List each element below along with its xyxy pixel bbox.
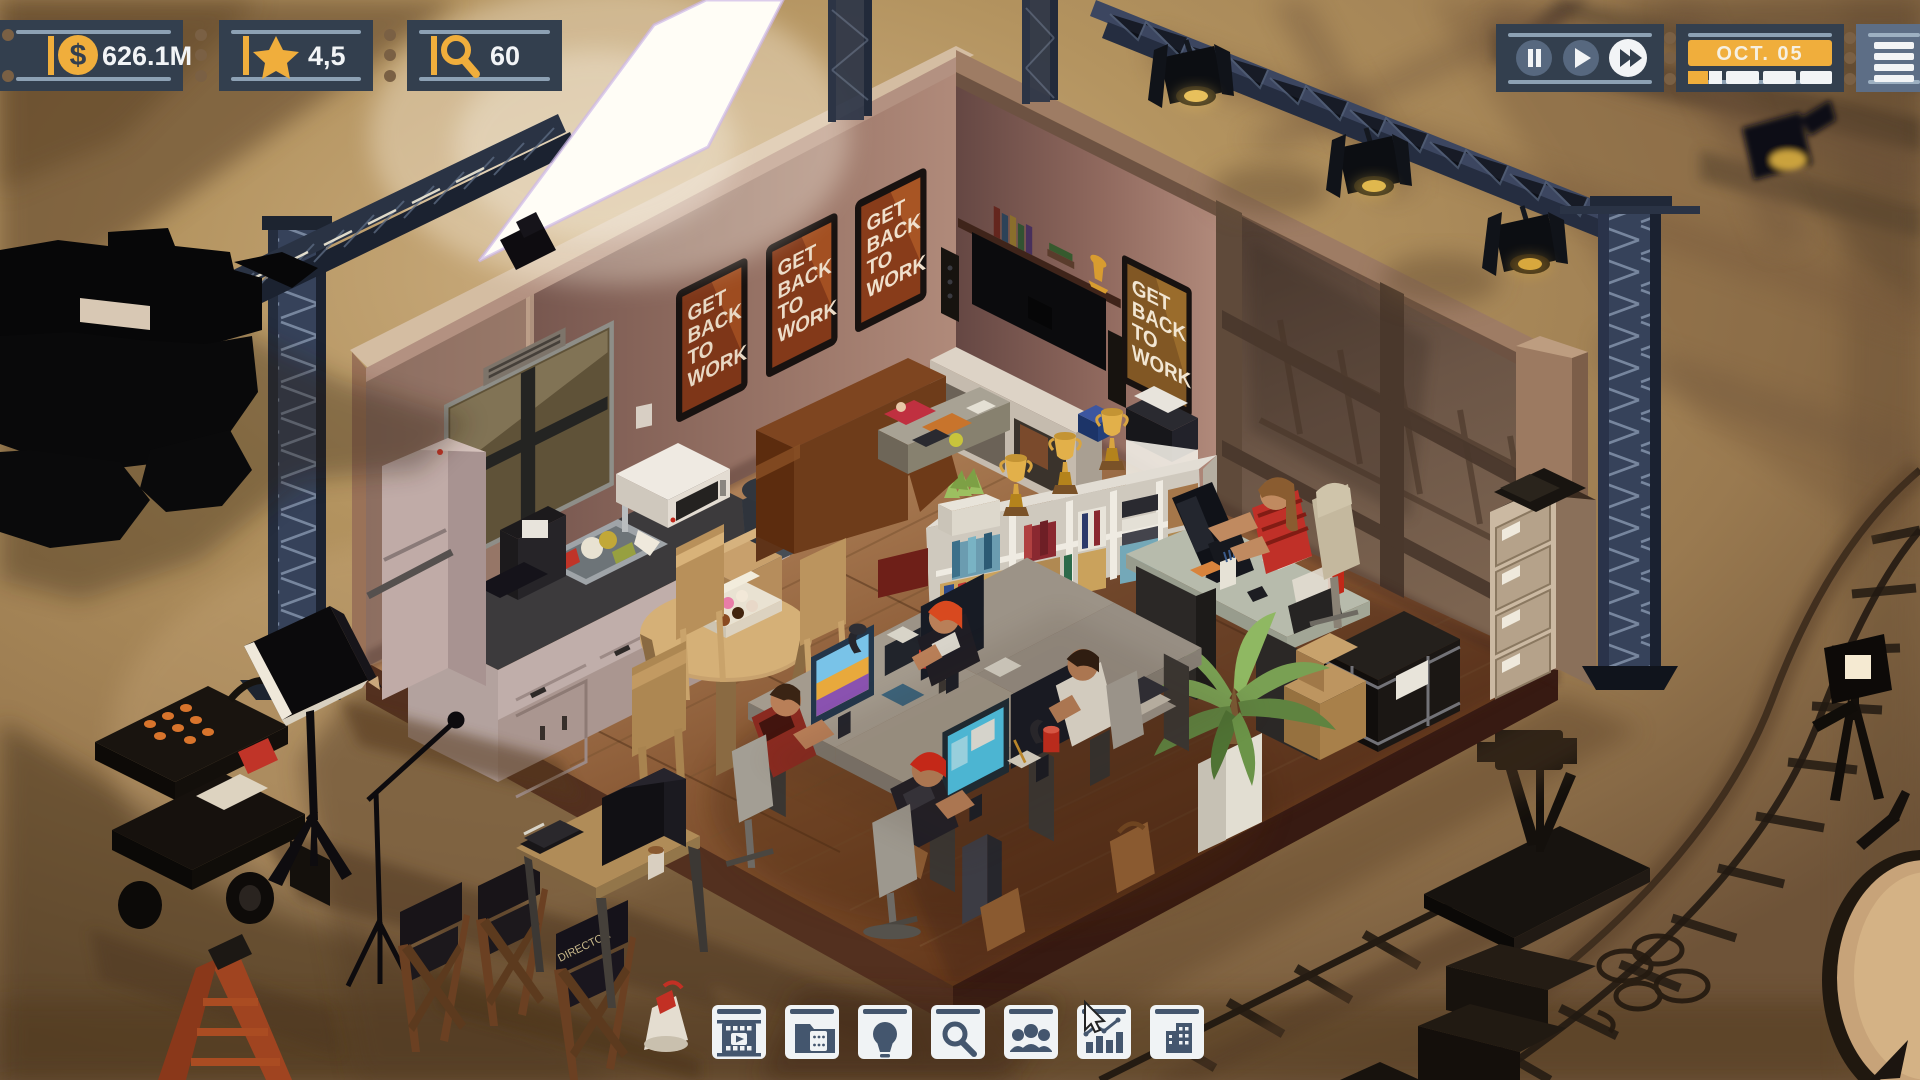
svg-text:60: 60 [490,41,520,71]
svg-text:4,5: 4,5 [308,41,346,71]
svg-text:OCT. 05: OCT. 05 [1716,43,1803,65]
svg-text:626.1M: 626.1M [102,41,192,71]
svg-text:$: $ [70,39,87,72]
